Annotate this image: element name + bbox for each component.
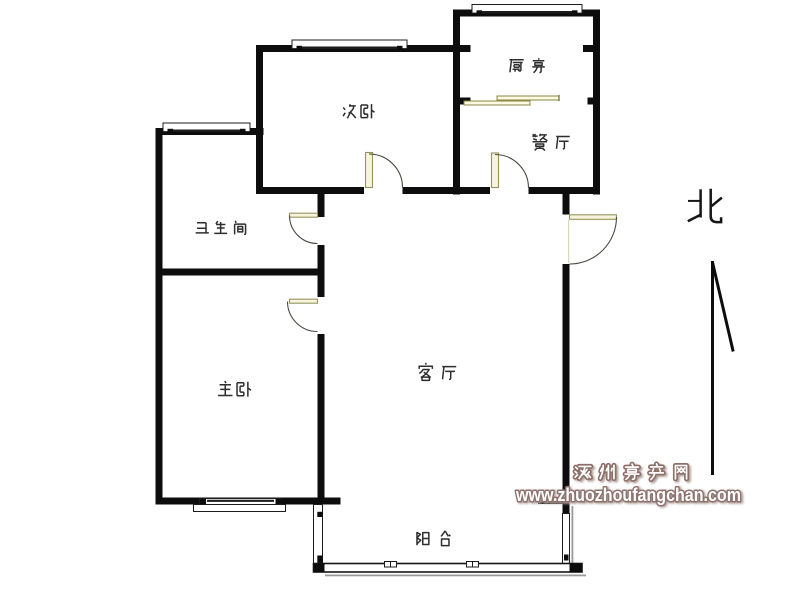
svg-text:www.zhuozhoufangchan.com: www.zhuozhoufangchan.com bbox=[515, 485, 741, 505]
